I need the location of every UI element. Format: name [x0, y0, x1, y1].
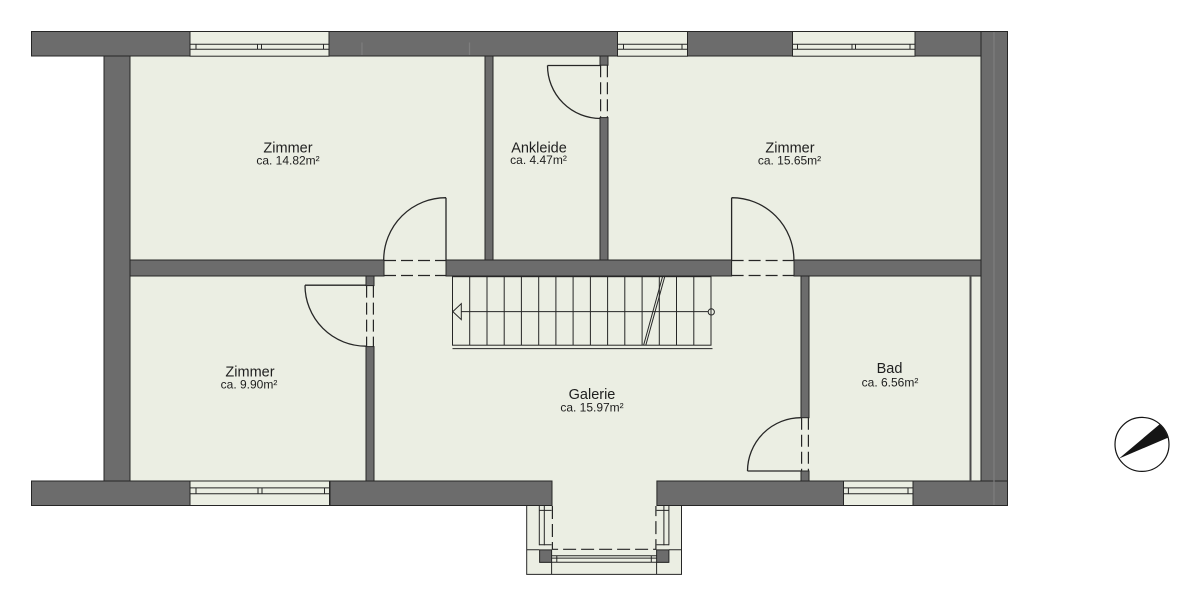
svg-text:ca. 4.47m²: ca. 4.47m²: [510, 153, 567, 167]
svg-text:ca. 9.90m²: ca. 9.90m²: [221, 378, 278, 392]
svg-text:ca. 6.56m²: ca. 6.56m²: [862, 376, 919, 390]
svg-text:ca. 15.65m²: ca. 15.65m²: [758, 154, 821, 168]
svg-text:ca. 14.82m²: ca. 14.82m²: [256, 154, 319, 168]
svg-text:ca. 15.97m²: ca. 15.97m²: [560, 400, 623, 414]
